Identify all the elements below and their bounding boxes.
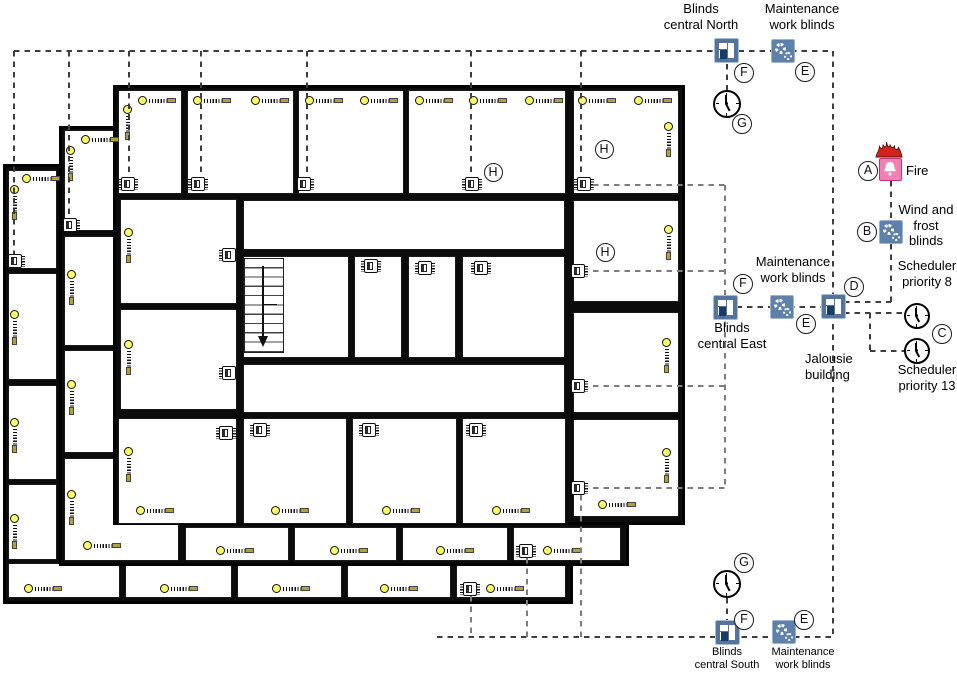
letter-badge-f: F (733, 274, 753, 294)
window-actuator-icon (60, 218, 80, 233)
dashed-connection-line (200, 51, 202, 177)
blind-drive-symbol (469, 96, 506, 106)
stair-down-arrow (258, 336, 268, 347)
letter-badge-f: F (734, 63, 754, 83)
window-actuator-icon (188, 177, 208, 192)
letter-badge-g: G (734, 553, 754, 573)
letter-badge-e: E (794, 610, 814, 630)
label-line: blinds (895, 233, 957, 249)
window-actuator-icon (5, 254, 25, 269)
label-line: Scheduler (887, 258, 957, 274)
blind-drive-symbol (492, 506, 529, 516)
label-jalousie-building: Jalousie building (805, 351, 865, 382)
blind-drive-symbol (67, 490, 77, 524)
window-actuator-icon (250, 423, 270, 438)
dashed-connection-line (593, 385, 725, 387)
blind-drive-symbol (662, 448, 672, 482)
dashed-connection-line (593, 270, 725, 272)
window-actuator-icon (361, 259, 381, 274)
window-actuator-icon (466, 423, 486, 438)
dashed-connection-line (832, 51, 834, 637)
letter-badge-f: F (734, 610, 754, 630)
letter-badge-a: A (858, 161, 878, 181)
room (120, 309, 237, 410)
blind-drive-symbol (22, 174, 59, 184)
dashed-connection-line (870, 350, 904, 352)
blind-drive-symbol (525, 96, 562, 106)
blind-drive-symbol (124, 447, 134, 481)
label-wind-frost-blinds: Wind and frost blinds (895, 202, 957, 249)
dashed-connection-line (14, 50, 833, 52)
blind-drive-symbol (543, 546, 580, 556)
label-line: building (805, 367, 865, 383)
label-line: work blinds (754, 659, 852, 672)
label-line: work blinds (740, 270, 846, 286)
blind-drive-symbol (664, 225, 674, 259)
window-actuator-icon (219, 248, 239, 263)
label-line: Maintenance (754, 646, 852, 659)
flames-glyph (874, 141, 904, 158)
blind-drive-symbol (136, 506, 173, 516)
letter-badge-h: H (595, 140, 614, 159)
blind-drive-symbol (272, 584, 309, 594)
dashed-connection-line (890, 181, 892, 221)
label-line: Maintenance (740, 254, 846, 270)
stair-direction-line (262, 266, 264, 338)
window-actuator-icon (415, 261, 435, 276)
label-maintenance-work-blinds-east: Maintenance work blinds (740, 254, 846, 285)
blind-drive-symbol (598, 500, 635, 510)
blind-drive-symbol (578, 96, 615, 106)
label-maintenance-work-blinds-north: Maintenance work blinds (750, 1, 854, 32)
window-actuator-icon (216, 426, 236, 441)
window-actuator-icon (460, 582, 480, 597)
window-actuator-icon (568, 481, 588, 496)
dashed-connection-line (470, 596, 472, 637)
maintenance-north-gear-icon[interactable] (771, 39, 795, 63)
blind-drive-symbol (138, 96, 175, 106)
dashed-connection-line (470, 51, 472, 177)
blind-drive-symbol (124, 228, 134, 262)
stair-landing-line (263, 304, 277, 305)
letter-badge-h: H (484, 163, 503, 182)
letter-badge-e: E (796, 314, 816, 334)
dashed-connection-line (68, 51, 70, 218)
label-fire: Fire (906, 163, 952, 179)
blind-drive-symbol (662, 338, 672, 372)
dashed-connection-line (580, 495, 582, 637)
window-actuator-icon (568, 379, 588, 394)
dashed-connection-line (526, 558, 528, 637)
blind-drive-symbol (124, 340, 134, 374)
dashed-connection-line (580, 51, 582, 177)
label-line: Blinds (649, 1, 753, 17)
label-line: frost (895, 218, 957, 234)
dashed-connection-line (13, 51, 15, 254)
blind-drive-symbol (24, 584, 61, 594)
blind-drive-symbol (160, 584, 197, 594)
blind-drive-symbol (216, 546, 253, 556)
blind-drive-symbol (10, 185, 20, 219)
blind-drive-symbol (67, 270, 77, 304)
scheduler-south-clock-icon[interactable] (713, 570, 741, 598)
letter-badge-b: B (857, 222, 877, 242)
blind-drive-symbol (10, 418, 20, 452)
blind-drive-symbol (10, 514, 20, 548)
dashed-connection-line (593, 487, 725, 489)
dashed-connection-line (726, 598, 728, 620)
blind-drive-symbol (380, 584, 417, 594)
label-line: Scheduler (887, 362, 957, 378)
maintenance-east-gear-icon[interactable] (770, 295, 794, 319)
label-line: Fire (906, 163, 952, 179)
window-actuator-icon (471, 261, 491, 276)
fire-flames-icon (874, 141, 904, 163)
scheduler-north-clock-icon[interactable] (713, 90, 741, 118)
blind-drive-symbol (436, 546, 473, 556)
blind-drive-symbol (382, 506, 419, 516)
blind-drive-symbol (67, 380, 77, 414)
dashed-connection-line (306, 51, 308, 177)
label-scheduler-priority-13: Scheduler priority 13 (887, 362, 957, 393)
blind-drive-symbol (10, 310, 20, 344)
label-maintenance-work-blinds-south: Maintenance work blinds (754, 646, 852, 671)
letter-badge-e: E (795, 62, 815, 82)
label-line: priority 8 (887, 274, 957, 290)
window-actuator-icon (574, 177, 594, 192)
room (243, 200, 565, 250)
label-line: work blinds (750, 17, 854, 33)
jalousie-building-icon[interactable] (821, 294, 846, 319)
blind-drive-symbol (360, 96, 397, 106)
label-blinds-central-east: Blinds central East (682, 320, 782, 351)
letter-badge-g: G (732, 114, 752, 134)
dashed-connection-line (593, 184, 725, 186)
letter-badge-h: H (596, 243, 615, 262)
blind-drive-symbol (634, 96, 671, 106)
scheduler-priority13-clock-icon[interactable] (904, 338, 930, 364)
window-actuator-icon (219, 366, 239, 381)
blind-drive-symbol (415, 96, 452, 106)
label-line: central North (649, 17, 753, 33)
window-actuator-icon (516, 544, 536, 559)
blind-drive-symbol (330, 546, 367, 556)
blind-drive-symbol (271, 506, 308, 516)
dashed-connection-line (128, 51, 130, 177)
blinds-central-east-icon[interactable] (713, 295, 738, 320)
label-line: Blinds (682, 320, 782, 336)
scheduler-priority8-clock-icon[interactable] (904, 303, 930, 329)
building-automation-diagram: Blinds central North Maintenance work bl… (0, 0, 957, 673)
label-line: Jalousie (805, 351, 865, 367)
window-actuator-icon (359, 423, 379, 438)
label-scheduler-priority-8: Scheduler priority 8 (887, 258, 957, 289)
blind-drive-symbol (251, 96, 288, 106)
window-actuator-icon (568, 264, 588, 279)
dashed-connection-line (726, 64, 728, 90)
label-line: priority 13 (887, 378, 957, 394)
window-actuator-icon (118, 177, 138, 192)
blind-drive-symbol (81, 135, 118, 145)
letter-badge-d: D (844, 277, 864, 297)
blind-drive-symbol (193, 96, 230, 106)
label-blinds-central-north: Blinds central North (649, 1, 753, 32)
dashed-connection-line (844, 312, 904, 314)
blinds-central-north-icon[interactable] (714, 38, 739, 63)
label-line: central East (682, 336, 782, 352)
room (243, 364, 565, 413)
blind-drive-symbol (486, 584, 523, 594)
label-line: Wind and (895, 202, 957, 218)
dashed-connection-line (869, 313, 871, 351)
letter-badge-c: C (932, 324, 952, 344)
window-actuator-icon (294, 177, 314, 192)
label-line: Maintenance (750, 1, 854, 17)
blind-drive-symbol (664, 122, 674, 156)
window-actuator-icon (462, 177, 482, 192)
dashed-connection-line (844, 301, 891, 303)
blind-drive-symbol (83, 541, 120, 551)
maintenance-south-gear-icon[interactable] (772, 620, 796, 644)
blind-drive-symbol (305, 96, 342, 106)
